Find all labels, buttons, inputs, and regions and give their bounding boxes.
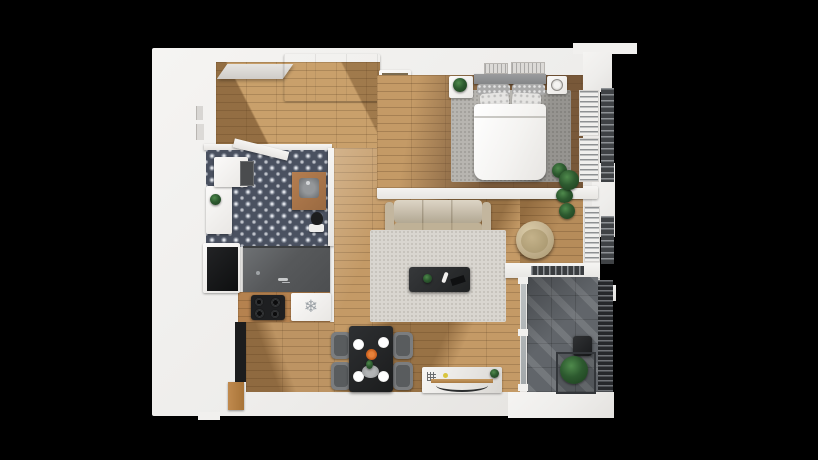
burner-1 — [254, 297, 264, 307]
burner-4 — [270, 309, 280, 319]
kitchen-tall-cabinet — [228, 382, 244, 410]
exterior-shutter-bedroom — [601, 88, 614, 182]
dining-table — [349, 326, 393, 392]
nook-plant-lower — [559, 203, 575, 219]
annex-top-right — [583, 52, 612, 92]
coffee-table-candle — [441, 272, 449, 284]
kitchen-faucet — [278, 278, 288, 281]
bottom-wall-balcony — [508, 392, 614, 418]
air-vent-2 — [511, 62, 545, 74]
exterior-shutter-nook — [601, 216, 614, 264]
table-greenery — [366, 360, 373, 369]
plate-1 — [353, 339, 364, 350]
toilet-seat — [311, 212, 323, 225]
door-frame-bottom — [518, 384, 528, 391]
burner-2 — [270, 297, 281, 308]
door-frame-top — [518, 277, 528, 284]
wall-switch — [196, 124, 204, 140]
media-console — [422, 367, 502, 393]
dining-chair-3 — [393, 332, 413, 359]
plate-4 — [378, 371, 389, 382]
bedroom-floor-plant-2 — [559, 170, 579, 190]
coffee-table-tray — [450, 275, 465, 286]
cooktop — [251, 295, 285, 320]
chair-seat — [334, 335, 348, 356]
storage-niche-dark — [207, 247, 238, 291]
chair-seat — [396, 365, 410, 387]
chair-seat — [334, 365, 348, 387]
bathroom-plant — [210, 194, 221, 205]
orange-dish — [366, 349, 377, 360]
fridge: ❄ — [291, 293, 331, 321]
bottom-wall-foot — [198, 412, 220, 420]
balcony-plant — [560, 356, 588, 384]
hall-closet — [284, 54, 380, 101]
coffee-table-plant — [423, 274, 432, 283]
nightstand-plant — [453, 78, 467, 92]
kitchen-sink-drain — [256, 271, 260, 275]
kitchen-cabinet-strip — [235, 322, 246, 382]
papasan-cushion — [521, 229, 548, 253]
dining-chair-1 — [331, 332, 351, 359]
sofa-back-cushions — [394, 200, 482, 223]
door-frame-mid — [518, 329, 528, 336]
electrical-panel — [196, 106, 203, 120]
chair-seat — [396, 335, 410, 356]
nook-plant-upper — [556, 188, 573, 203]
floor-plan-scene: ❄ — [0, 0, 818, 460]
plate-2 — [378, 337, 389, 348]
dining-chair-4 — [393, 362, 413, 390]
kitchen-counter — [243, 246, 330, 294]
burner-3 — [254, 308, 265, 319]
console-knob — [443, 373, 448, 378]
alarm-clock — [551, 79, 563, 91]
air-vent-1 — [484, 63, 508, 74]
console-plant — [490, 369, 499, 378]
bedroom-window-radiator-1 — [579, 90, 599, 136]
bathroom-mirror — [240, 161, 254, 186]
sink-faucet — [306, 181, 310, 185]
nook-window-radiator — [584, 206, 600, 262]
toilet-tank — [309, 224, 324, 232]
bed-headboard — [474, 74, 546, 84]
snowflake-icon: ❄ — [304, 299, 318, 316]
duvet-fold — [474, 116, 546, 118]
dining-chair-2 — [331, 362, 351, 390]
dining-floor — [246, 322, 334, 392]
balcony-window-sill — [531, 266, 584, 275]
bedroom-window-radiator-2 — [579, 138, 599, 182]
balcony-railing — [598, 280, 613, 392]
coffee-table — [409, 267, 470, 292]
console-cable — [436, 379, 488, 392]
entry-door-open — [217, 64, 294, 79]
washing-machine — [206, 186, 232, 234]
